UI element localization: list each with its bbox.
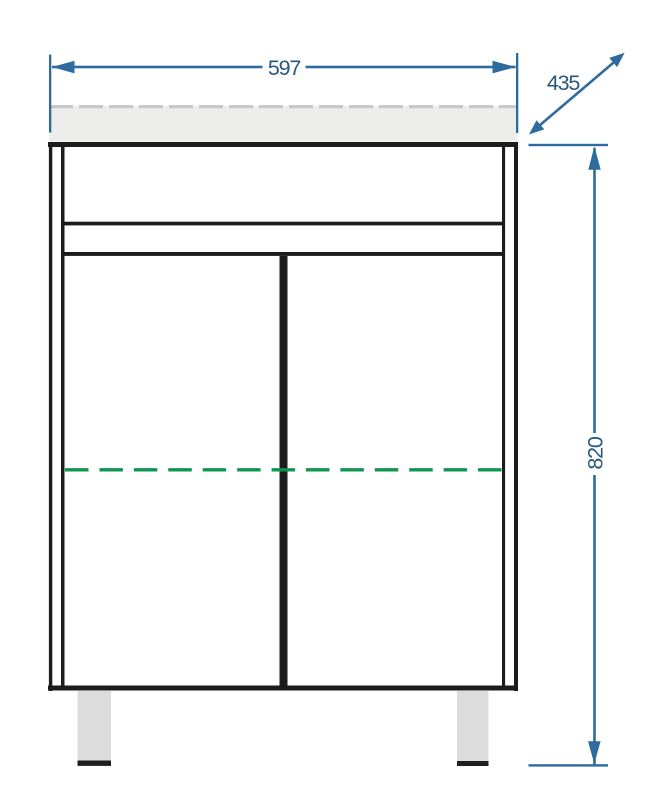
svg-text:820: 820 xyxy=(583,436,607,470)
svg-text:597: 597 xyxy=(268,56,301,80)
svg-text:435: 435 xyxy=(547,71,581,95)
